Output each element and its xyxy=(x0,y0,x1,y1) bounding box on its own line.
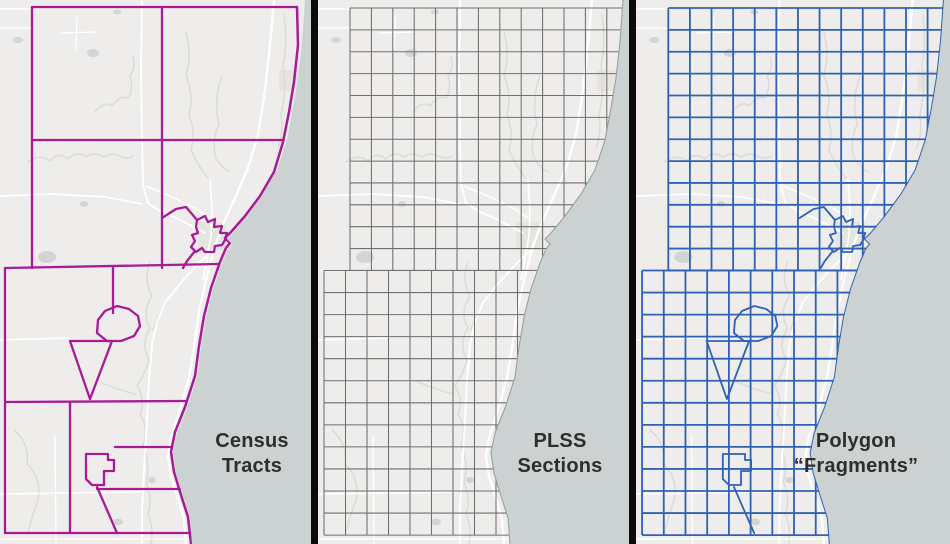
panel-plss-sections: PLSS Sections xyxy=(318,0,629,544)
basemap xyxy=(636,0,950,544)
panel-polygon-fragments: Polygon “Fragments” xyxy=(636,0,950,544)
census-map xyxy=(0,0,311,544)
plss-map xyxy=(318,0,629,544)
panel-census-tracts: Census Tracts xyxy=(0,0,311,544)
map-comparison: Census Tracts PLSS Sections Polygon “Fra… xyxy=(0,0,950,544)
basemap xyxy=(0,0,311,544)
fragments-map xyxy=(636,0,950,544)
basemap xyxy=(318,0,629,544)
